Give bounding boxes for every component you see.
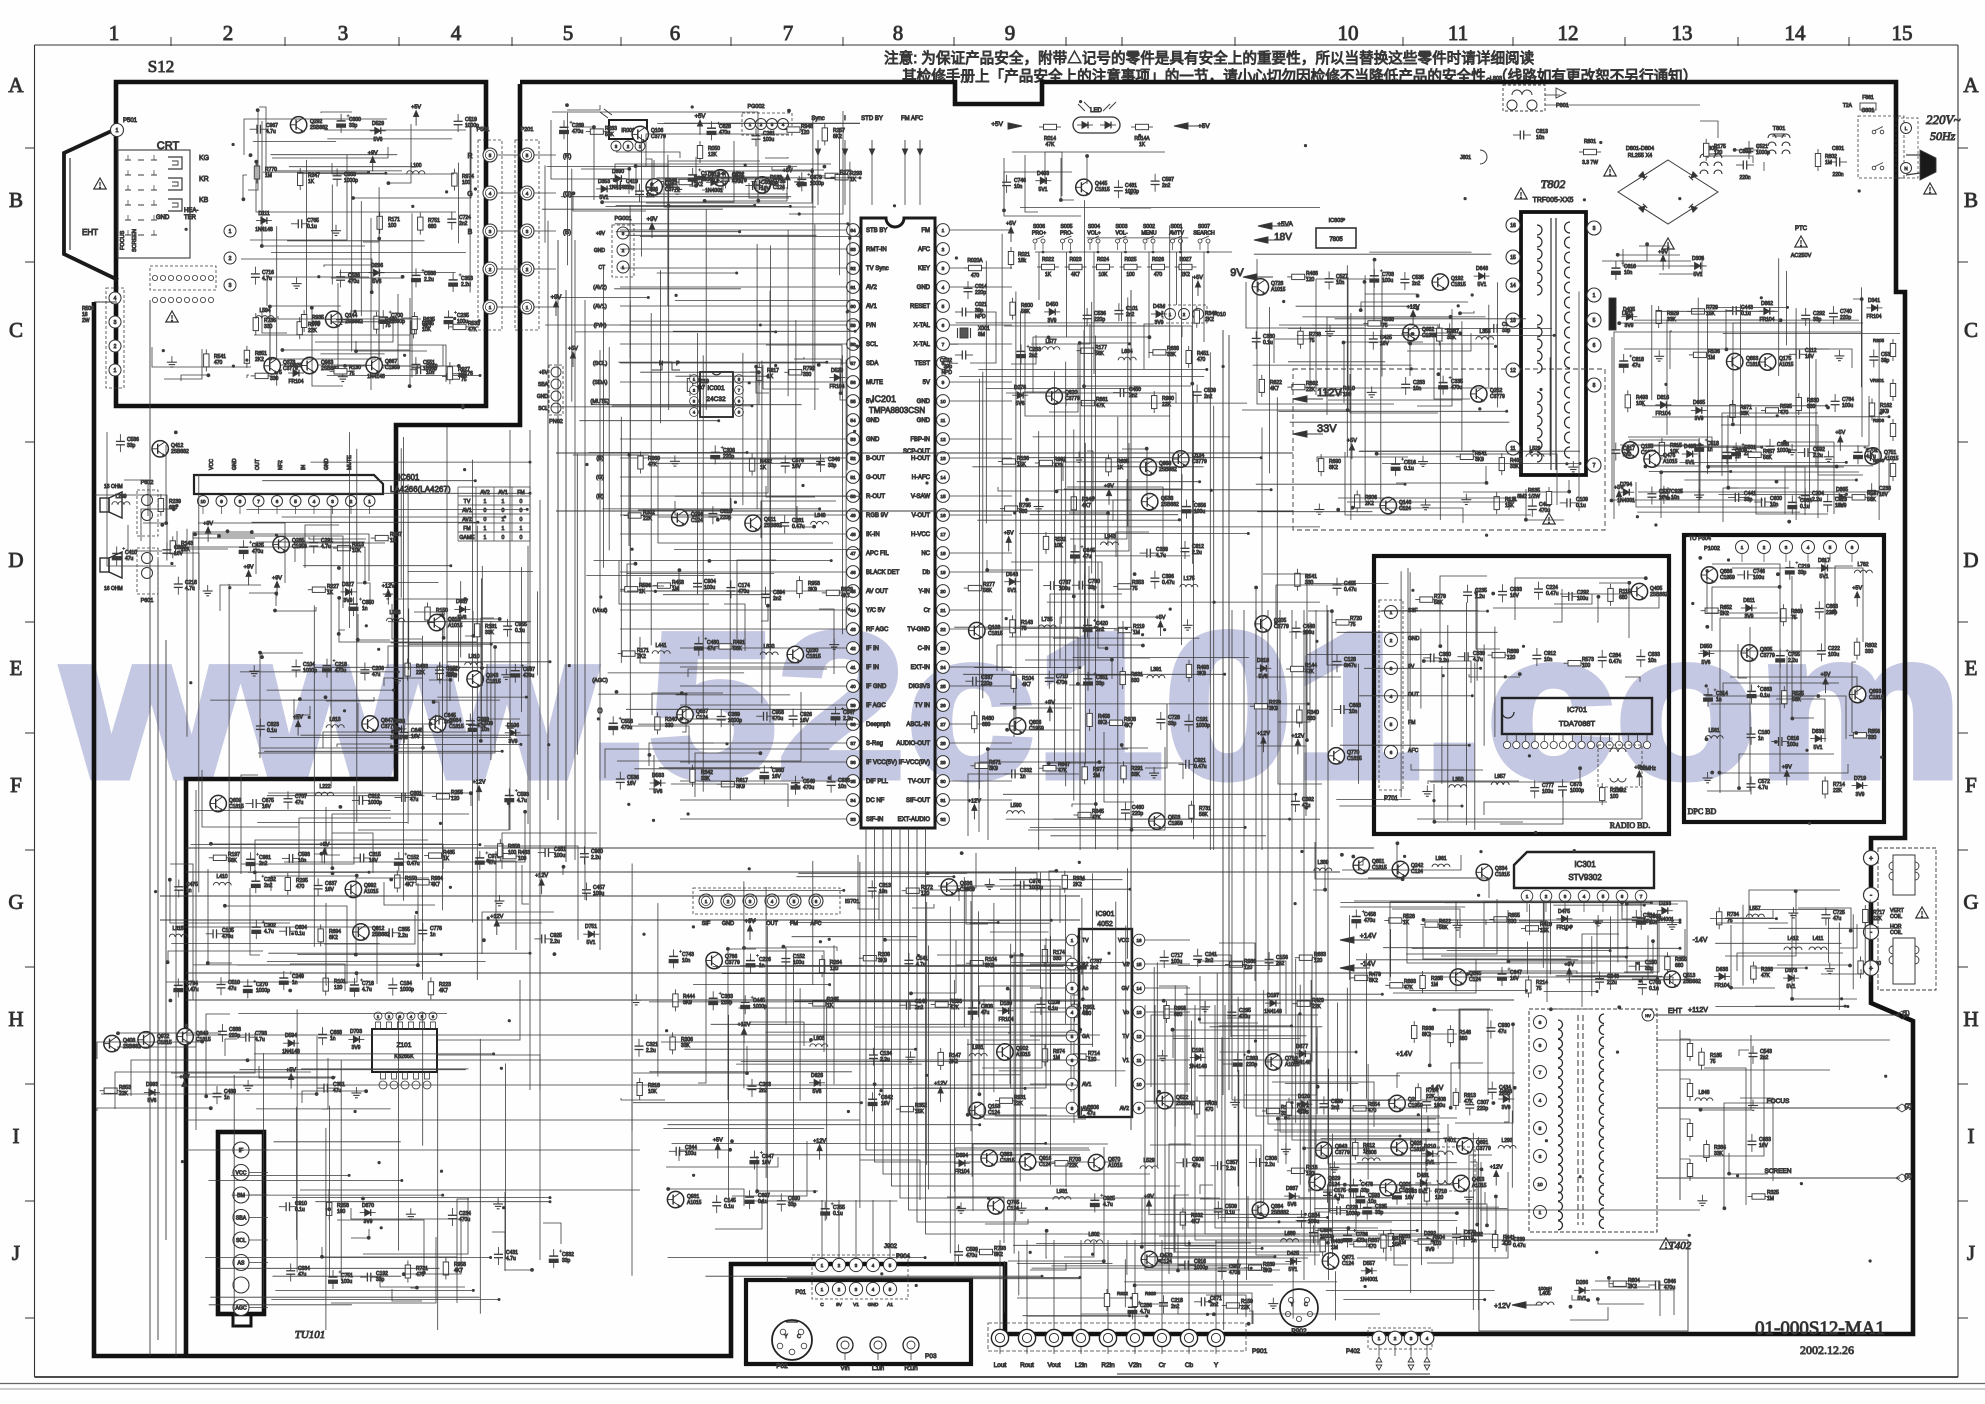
svg-text:4: 4: [1390, 694, 1393, 699]
svg-text:IC901: IC901: [1096, 911, 1115, 918]
svg-text:15K: 15K: [915, 1109, 925, 1115]
svg-text:L441: L441: [655, 643, 666, 649]
svg-text:L931: L931: [1056, 1189, 1067, 1195]
svg-text:4.7u: 4.7u: [1473, 657, 1483, 663]
svg-text:470u: 470u: [572, 129, 583, 135]
svg-text:2.2u: 2.2u: [424, 277, 434, 283]
svg-text:S006: S006: [1033, 224, 1045, 230]
svg-text:47K: 47K: [1404, 985, 1414, 991]
svg-text:1: 1: [116, 128, 119, 134]
svg-text:220p: 220p: [1477, 1106, 1488, 1112]
svg-text:33p: 33p: [127, 443, 136, 449]
svg-text:3V9: 3V9: [1426, 1247, 1435, 1253]
svg-text:0.1u: 0.1u: [267, 728, 277, 734]
svg-text:47u: 47u: [1632, 363, 1641, 369]
svg-text:BM: BM: [237, 1193, 245, 1199]
svg-text:FR104: FR104: [288, 379, 303, 385]
svg-text:470u: 470u: [1364, 918, 1375, 924]
svg-text:6: 6: [1071, 1058, 1074, 1063]
svg-text:2.2u: 2.2u: [1265, 1162, 1275, 1168]
svg-text:1: 1: [502, 526, 505, 532]
svg-text:TRF005-XX5: TRF005-XX5: [1533, 197, 1574, 204]
svg-text:P701: P701: [1384, 796, 1399, 802]
svg-text:LA4266(LA4267): LA4266(LA4267): [390, 485, 451, 494]
svg-text:0.47u: 0.47u: [1194, 764, 1207, 770]
svg-text:IC001: IC001: [707, 385, 725, 392]
svg-text:220n: 220n: [1832, 172, 1843, 178]
svg-text:6: 6: [670, 21, 681, 45]
svg-text:100: 100: [388, 223, 397, 229]
svg-text:4: 4: [942, 285, 945, 291]
svg-text:0: 0: [520, 535, 523, 541]
svg-text:9: 9: [1539, 1043, 1542, 1049]
svg-text:2: 2: [526, 267, 529, 272]
svg-text:10n: 10n: [1413, 386, 1422, 392]
svg-text:1000p: 1000p: [256, 988, 270, 994]
svg-text:1000p: 1000p: [1777, 448, 1791, 454]
svg-text:C1959: C1959: [1720, 575, 1735, 581]
svg-text:AS: AS: [238, 1261, 245, 1267]
svg-text:100u: 100u: [1787, 742, 1798, 748]
svg-text:D296: D296: [371, 263, 383, 269]
svg-text:3K9: 3K9: [1263, 1268, 1272, 1274]
svg-text:2: 2: [229, 256, 232, 262]
svg-text:220p: 220p: [720, 515, 731, 521]
svg-text:1: 1: [622, 265, 625, 270]
svg-text:SCREEN: SCREEN: [1764, 1168, 1791, 1175]
svg-text:R1in: R1in: [904, 1365, 918, 1372]
svg-text:AV OUT: AV OUT: [866, 589, 888, 595]
svg-text:2n2: 2n2: [1210, 1302, 1219, 1308]
svg-text:R-OUT: R-OUT: [866, 494, 885, 500]
svg-text:25: 25: [940, 684, 946, 690]
svg-text:3K9: 3K9: [808, 587, 817, 593]
svg-text:33p: 33p: [1096, 681, 1105, 687]
svg-text:1M: 1M: [1093, 773, 1100, 779]
svg-text:16V: 16V: [262, 804, 272, 810]
svg-text:L833: L833: [763, 644, 774, 650]
svg-text:GND: GND: [324, 458, 330, 470]
svg-text:GND: GND: [868, 1302, 879, 1308]
svg-text:15K: 15K: [1505, 503, 1515, 509]
svg-text:16V: 16V: [762, 1160, 772, 1166]
svg-text:4: 4: [526, 191, 529, 196]
svg-text:3V9: 3V9: [1625, 323, 1634, 329]
svg-text:220p: 220p: [975, 290, 986, 296]
svg-text:75: 75: [349, 371, 355, 377]
svg-text:1: 1: [520, 526, 523, 532]
svg-text:1N4001: 1N4001: [1617, 498, 1635, 504]
svg-text:120: 120: [1244, 965, 1253, 971]
svg-text:A1: A1: [1082, 1010, 1088, 1016]
svg-text:5V1: 5V1: [1694, 272, 1703, 278]
svg-text:Ao: Ao: [1082, 986, 1088, 992]
svg-text:STV9302: STV9302: [1568, 873, 1602, 882]
svg-text:2: 2: [1390, 638, 1393, 643]
svg-text:44: 44: [850, 608, 856, 614]
svg-text:16V: 16V: [1879, 492, 1889, 498]
svg-text:T801: T801: [1773, 126, 1786, 132]
svg-text:60: 60: [850, 304, 856, 310]
svg-text:KEY: KEY: [918, 266, 930, 272]
svg-text:F: F: [10, 773, 22, 797]
svg-text:(3): (3): [1904, 1174, 1911, 1180]
svg-text:5V6: 5V6: [148, 1098, 157, 1104]
svg-text:Y: Y: [784, 1334, 788, 1340]
svg-text:1: 1: [489, 305, 492, 310]
svg-text:A: A: [8, 73, 24, 97]
svg-text:5V1: 5V1: [1008, 588, 1017, 594]
svg-text:Y-IN: Y-IN: [919, 589, 930, 595]
svg-text:R024: R024: [1097, 257, 1109, 263]
svg-text:GND: GND: [917, 285, 931, 291]
svg-text:R022: R022: [1042, 257, 1054, 263]
svg-text:33K: 33K: [485, 630, 495, 636]
svg-text:1n: 1n: [1716, 697, 1722, 703]
svg-text:P402: P402: [1346, 1349, 1361, 1355]
svg-text:1000p: 1000p: [368, 800, 382, 806]
svg-text:+: +: [1869, 856, 1873, 863]
svg-text:L293: L293: [1501, 1138, 1512, 1144]
svg-text:8: 8: [893, 21, 904, 45]
svg-text:470: 470: [296, 884, 305, 890]
svg-text:11: 11: [941, 418, 946, 424]
svg-text:GND: GND: [594, 248, 606, 254]
svg-text:L1in: L1in: [872, 1365, 885, 1372]
svg-text:0.47u: 0.47u: [1344, 587, 1357, 593]
svg-text:56K: 56K: [733, 646, 743, 652]
svg-text:+14V: +14V: [1396, 1051, 1413, 1058]
svg-text:FM: FM: [463, 526, 471, 532]
svg-text:F: F: [1965, 773, 1977, 797]
svg-text:2: 2: [1394, 1336, 1397, 1341]
svg-text:2: 2: [727, 899, 730, 904]
svg-text:47u: 47u: [228, 986, 237, 992]
svg-text:GND: GND: [866, 418, 880, 424]
svg-text:64: 64: [850, 228, 856, 234]
svg-text:2SB882: 2SB882: [1159, 467, 1177, 473]
svg-text:R801: R801: [1584, 139, 1596, 145]
svg-text:10n: 10n: [1835, 503, 1844, 509]
svg-text:470: 470: [1368, 1244, 1377, 1250]
svg-text:4K7: 4K7: [1071, 272, 1080, 278]
svg-text:D475: D475: [1558, 909, 1570, 915]
svg-text:C1815: C1815: [157, 1040, 172, 1046]
svg-text:3: 3: [489, 229, 492, 234]
svg-text:1K: 1K: [390, 538, 397, 544]
svg-text:47K: 47K: [468, 327, 478, 333]
svg-text:8K2: 8K2: [994, 1252, 1003, 1258]
svg-text:49: 49: [850, 513, 856, 519]
svg-text:FR104: FR104: [1866, 314, 1881, 320]
svg-text:100: 100: [1433, 1241, 1442, 1247]
svg-text:C124: C124: [1342, 1261, 1354, 1267]
svg-text:4.7u: 4.7u: [517, 798, 527, 804]
svg-text:C1815: C1815: [1869, 695, 1884, 701]
svg-text:NC: NC: [921, 551, 930, 557]
svg-text:33p: 33p: [349, 123, 358, 129]
svg-text:56K: 56K: [1434, 600, 1444, 606]
svg-text:59: 59: [850, 323, 856, 329]
svg-text:16V: 16V: [1405, 1195, 1415, 1201]
svg-text:3K9: 3K9: [1269, 706, 1278, 712]
svg-text:7: 7: [1640, 894, 1643, 899]
svg-text:C124: C124: [1469, 977, 1481, 983]
svg-text:10K: 10K: [1099, 272, 1109, 278]
svg-text:+5V: +5V: [1852, 586, 1862, 592]
svg-text:C1815: C1815: [1347, 756, 1362, 762]
svg-text:53: 53: [850, 437, 856, 443]
svg-text:P03: P03: [925, 1353, 937, 1360]
svg-text:4: 4: [451, 21, 462, 45]
svg-text:470: 470: [1503, 1241, 1512, 1247]
svg-text:TER: TER: [184, 215, 197, 221]
svg-text:MUTE: MUTE: [866, 380, 883, 386]
svg-text:2SB882: 2SB882: [1271, 1210, 1289, 1216]
svg-text:48: 48: [850, 532, 856, 538]
svg-text:46: 46: [850, 570, 856, 576]
svg-text:2n2: 2n2: [1126, 312, 1135, 318]
svg-text:33: 33: [850, 817, 856, 823]
svg-text:2: 2: [942, 247, 945, 253]
svg-text:2.2u: 2.2u: [591, 855, 601, 861]
svg-text:L561: L561: [1708, 728, 1719, 734]
svg-text:470u: 470u: [523, 673, 534, 679]
svg-text:4.7u: 4.7u: [1103, 1202, 1113, 1208]
svg-text:J: J: [12, 1241, 20, 1265]
svg-text:24C32: 24C32: [706, 396, 726, 403]
svg-text:220p: 220p: [446, 672, 457, 678]
svg-text:7: 7: [1539, 1070, 1542, 1076]
svg-text:D665: D665: [1693, 400, 1705, 406]
svg-text:1K: 1K: [327, 590, 334, 596]
svg-text:D703: D703: [350, 1029, 362, 1035]
svg-text:47K: 47K: [1761, 973, 1771, 979]
svg-text:1K: 1K: [639, 589, 646, 595]
svg-text:3V9: 3V9: [1745, 614, 1754, 620]
svg-text:C124: C124: [696, 715, 708, 721]
svg-text:4052: 4052: [1097, 921, 1113, 928]
svg-text:L803: L803: [1490, 76, 1502, 82]
svg-text:10n: 10n: [646, 193, 655, 199]
svg-text:KR: KR: [199, 176, 209, 183]
svg-text:4K7: 4K7: [1270, 386, 1279, 392]
svg-text:+12V: +12V: [490, 914, 503, 920]
svg-text:16V: 16V: [174, 551, 184, 557]
svg-text:5V1: 5V1: [600, 195, 609, 201]
svg-text:100u: 100u: [1382, 278, 1393, 284]
svg-text:13: 13: [1672, 21, 1693, 45]
svg-text:1n: 1n: [430, 932, 436, 938]
svg-text:TV: TV: [464, 499, 471, 505]
svg-text:+9V: +9V: [203, 521, 213, 527]
svg-text:3: 3: [942, 266, 945, 272]
svg-text:1000p: 1000p: [303, 668, 317, 674]
svg-text:26: 26: [940, 703, 946, 709]
svg-text:S001: S001: [1170, 224, 1182, 230]
svg-text:24: 24: [940, 665, 946, 671]
svg-text:1K: 1K: [1403, 920, 1410, 926]
svg-text:1: 1: [1741, 545, 1744, 550]
svg-text:0.1u: 0.1u: [833, 1211, 843, 1217]
svg-text:C124: C124: [1039, 1162, 1051, 1168]
svg-text:16V: 16V: [761, 186, 771, 192]
svg-text:D833: D833: [1812, 729, 1824, 735]
svg-text:C: C: [797, 1334, 801, 1340]
svg-text:2K2: 2K2: [637, 654, 646, 660]
svg-text:2.2u: 2.2u: [1475, 594, 1485, 600]
svg-text:E: E: [1965, 656, 1978, 680]
svg-text:+9V: +9V: [1045, 700, 1055, 706]
svg-text:TV: TV: [1082, 938, 1089, 944]
svg-text:1N4001: 1N4001: [705, 188, 723, 194]
svg-text:L389: L389: [1317, 860, 1328, 866]
svg-text:Deepnph: Deepnph: [866, 722, 890, 728]
svg-text:GND: GND: [232, 458, 238, 470]
svg-text:4.7u: 4.7u: [185, 586, 195, 592]
svg-text:330: 330: [1131, 678, 1140, 684]
svg-text:PG001: PG001: [614, 216, 631, 222]
svg-text:0.1u: 0.1u: [724, 1204, 734, 1210]
svg-text:15K: 15K: [1392, 1242, 1402, 1248]
svg-text:GND: GND: [866, 437, 880, 443]
svg-text:1: 1: [1378, 1336, 1381, 1341]
svg-text:Lout: Lout: [994, 1362, 1007, 1369]
svg-text:1K: 1K: [760, 465, 767, 471]
svg-text:D887: D887: [1286, 1186, 1298, 1192]
svg-text:1n: 1n: [362, 606, 368, 612]
svg-text:A1015: A1015: [1663, 459, 1678, 465]
svg-text:L590: L590: [1010, 803, 1021, 809]
svg-text:D: D: [8, 548, 23, 572]
svg-text:120: 120: [334, 985, 343, 991]
svg-text:P801: P801: [1556, 103, 1569, 109]
svg-text:5V6: 5V6: [373, 279, 382, 285]
svg-text:D719: D719: [1854, 776, 1866, 782]
svg-text:+5V: +5V: [713, 1138, 723, 1144]
svg-text:TMPA8803CSN: TMPA8803CSN: [869, 406, 926, 415]
svg-text:OUT: OUT: [766, 921, 778, 927]
svg-text:18k: 18k: [1018, 258, 1027, 264]
svg-text:4K7: 4K7: [1082, 503, 1091, 509]
svg-text:P904: P904: [896, 1254, 911, 1260]
svg-text:470: 470: [971, 273, 980, 279]
svg-text:1: 1: [526, 305, 529, 310]
svg-text:120: 120: [1714, 150, 1723, 156]
svg-text:0.1u: 0.1u: [1048, 1006, 1058, 1012]
svg-text:3: 3: [1539, 1154, 1542, 1160]
svg-text:1: 1: [229, 229, 232, 235]
svg-text:EHT: EHT: [1668, 1008, 1683, 1015]
svg-text:56K: 56K: [1199, 812, 1209, 818]
svg-text:330: 330: [312, 321, 321, 327]
svg-text:FR104: FR104: [998, 1017, 1013, 1023]
svg-text:+5V: +5V: [1004, 530, 1014, 536]
svg-text:8K2: 8K2: [1369, 978, 1378, 984]
svg-text:D912: D912: [708, 172, 720, 178]
svg-text:S12: S12: [148, 57, 174, 76]
svg-text:D870: D870: [362, 1203, 374, 1209]
svg-text:BLACK DET: BLACK DET: [866, 570, 900, 576]
svg-text:1K: 1K: [1363, 1149, 1370, 1155]
svg-text:SCL: SCL: [538, 406, 548, 412]
svg-text:75: 75: [1536, 986, 1542, 992]
svg-text:NPD: NPD: [975, 314, 986, 320]
svg-text:0.1u: 0.1u: [307, 224, 317, 230]
svg-text:5V6: 5V6: [374, 137, 383, 143]
svg-text:C3779: C3779: [1760, 653, 1775, 659]
svg-text:680: 680: [1619, 595, 1628, 601]
svg-text:TO P304: TO P304: [1689, 536, 1711, 542]
svg-text:33p: 33p: [626, 185, 635, 191]
svg-text:IF AGC: IF AGC: [866, 703, 886, 709]
svg-text:+5V: +5V: [1156, 615, 1166, 621]
svg-text:16: 16: [1510, 223, 1516, 229]
svg-text:3V9: 3V9: [344, 598, 353, 604]
svg-text:33K: 33K: [1740, 411, 1750, 417]
svg-text:11: 11: [1137, 1058, 1142, 1063]
svg-text:47u: 47u: [372, 672, 381, 678]
svg-text:15: 15: [1510, 255, 1516, 261]
svg-text:B: B: [9, 188, 23, 212]
svg-text:EXT-AUDIO: EXT-AUDIO: [898, 817, 931, 823]
svg-text:330: 330: [803, 372, 812, 378]
svg-text:47u: 47u: [707, 646, 716, 652]
svg-text:0: 0: [520, 499, 523, 505]
svg-text:4.7u: 4.7u: [362, 987, 372, 993]
svg-text:120: 120: [1314, 958, 1323, 964]
svg-text:IF GND: IF GND: [866, 684, 887, 690]
svg-text:33p: 33p: [1645, 966, 1654, 972]
svg-text:5: 5: [942, 304, 945, 310]
svg-text:47K: 47K: [1058, 768, 1068, 774]
svg-text:33K: 33K: [1510, 464, 1520, 470]
svg-text:+12V: +12V: [535, 873, 548, 879]
svg-text:P601: P601: [141, 598, 154, 604]
svg-text:STD BY: STD BY: [861, 116, 883, 122]
svg-text:L735: L735: [1041, 617, 1052, 623]
svg-text:C3779: C3779: [1192, 459, 1207, 465]
svg-text:14: 14: [1785, 21, 1807, 45]
svg-text:5V1: 5V1: [1478, 282, 1487, 288]
svg-text:B-OUT: B-OUT: [866, 456, 885, 462]
svg-text:+5V: +5V: [411, 105, 421, 111]
svg-text:APC FIL: APC FIL: [866, 551, 889, 557]
svg-text:30: 30: [940, 779, 946, 785]
svg-text:2.2u: 2.2u: [1812, 497, 1822, 503]
svg-text:10n: 10n: [1544, 657, 1553, 663]
svg-text:IC701: IC701: [1567, 705, 1587, 714]
svg-text:V2in: V2in: [1128, 1362, 1141, 1369]
svg-text:8: 8: [239, 499, 242, 504]
svg-text:5V1: 5V1: [1039, 187, 1048, 193]
svg-text:AGC: AGC: [235, 1306, 246, 1312]
svg-text:330: 330: [1053, 956, 1062, 962]
svg-text:0: 0: [502, 535, 505, 541]
svg-text:7: 7: [257, 499, 260, 504]
svg-text:D327: D327: [342, 582, 354, 588]
svg-text:330: 330: [1868, 735, 1877, 741]
svg-text:2n2: 2n2: [459, 221, 468, 227]
svg-text:0.47u: 0.47u: [1162, 580, 1175, 586]
svg-text:5V: 5V: [923, 380, 930, 386]
svg-text:VR801: VR801: [1870, 378, 1884, 383]
svg-text:0.1u: 0.1u: [1263, 340, 1273, 346]
svg-text:22K: 22K: [416, 670, 426, 676]
svg-text:6: 6: [815, 899, 818, 904]
svg-text:4.7u: 4.7u: [506, 1256, 516, 1262]
svg-text:C: C: [9, 318, 23, 342]
